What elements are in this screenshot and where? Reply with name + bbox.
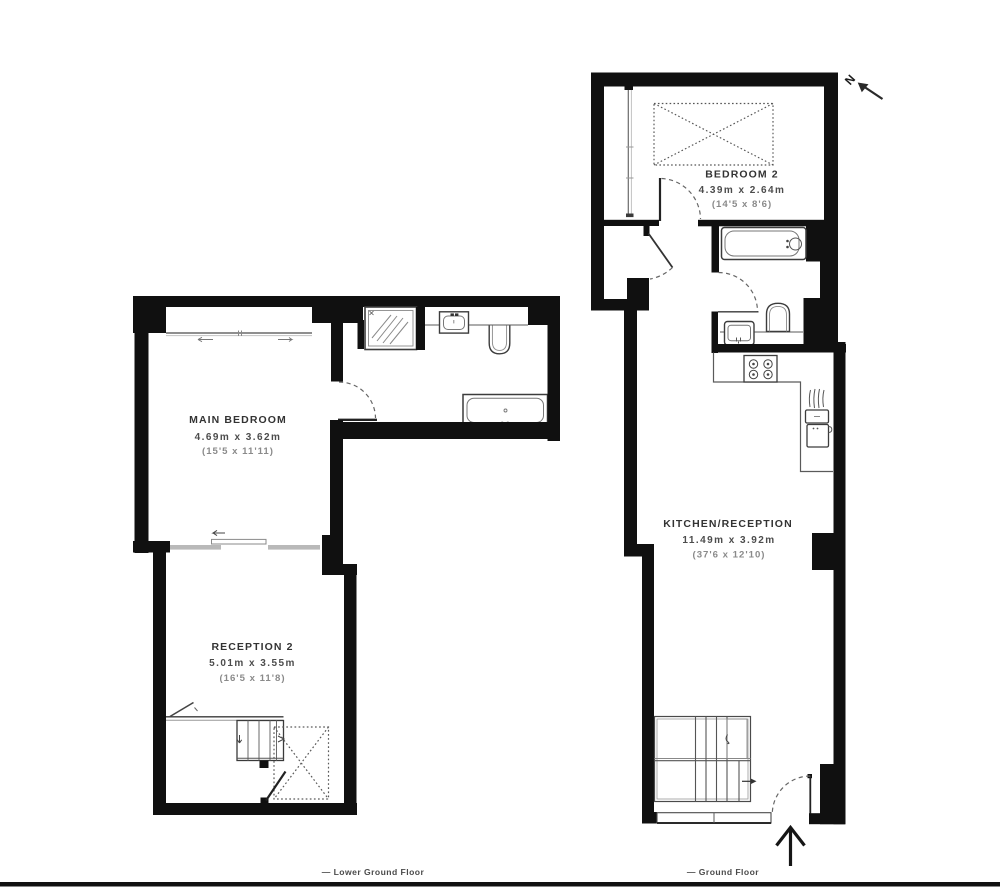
- svg-text:(15'5 x 11'11): (15'5 x 11'11): [202, 446, 274, 457]
- svg-text:— Lower Ground Floor: — Lower Ground Floor: [322, 867, 425, 877]
- svg-text:(16'5 x 11'8): (16'5 x 11'8): [219, 673, 285, 684]
- svg-text:N: N: [842, 72, 858, 88]
- svg-text:(14'5 x 8'6): (14'5 x 8'6): [712, 199, 772, 210]
- svg-text:MAIN BEDROOM: MAIN BEDROOM: [189, 414, 287, 426]
- svg-text:BEDROOM 2: BEDROOM 2: [705, 169, 779, 181]
- svg-text:4.39m x 2.64m: 4.39m x 2.64m: [699, 185, 786, 196]
- svg-text:RECEPTION 2: RECEPTION 2: [211, 641, 293, 653]
- svg-text:5.01m x 3.55m: 5.01m x 3.55m: [209, 658, 296, 669]
- svg-text:11.49m x 3.92m: 11.49m x 3.92m: [682, 535, 775, 546]
- svg-text:KITCHEN/RECEPTION: KITCHEN/RECEPTION: [663, 518, 793, 530]
- svg-text:4.69m x 3.62m: 4.69m x 3.62m: [195, 432, 282, 443]
- svg-text:(37'6 x 12'10): (37'6 x 12'10): [693, 550, 766, 561]
- svg-text:— Ground Floor: — Ground Floor: [687, 867, 759, 877]
